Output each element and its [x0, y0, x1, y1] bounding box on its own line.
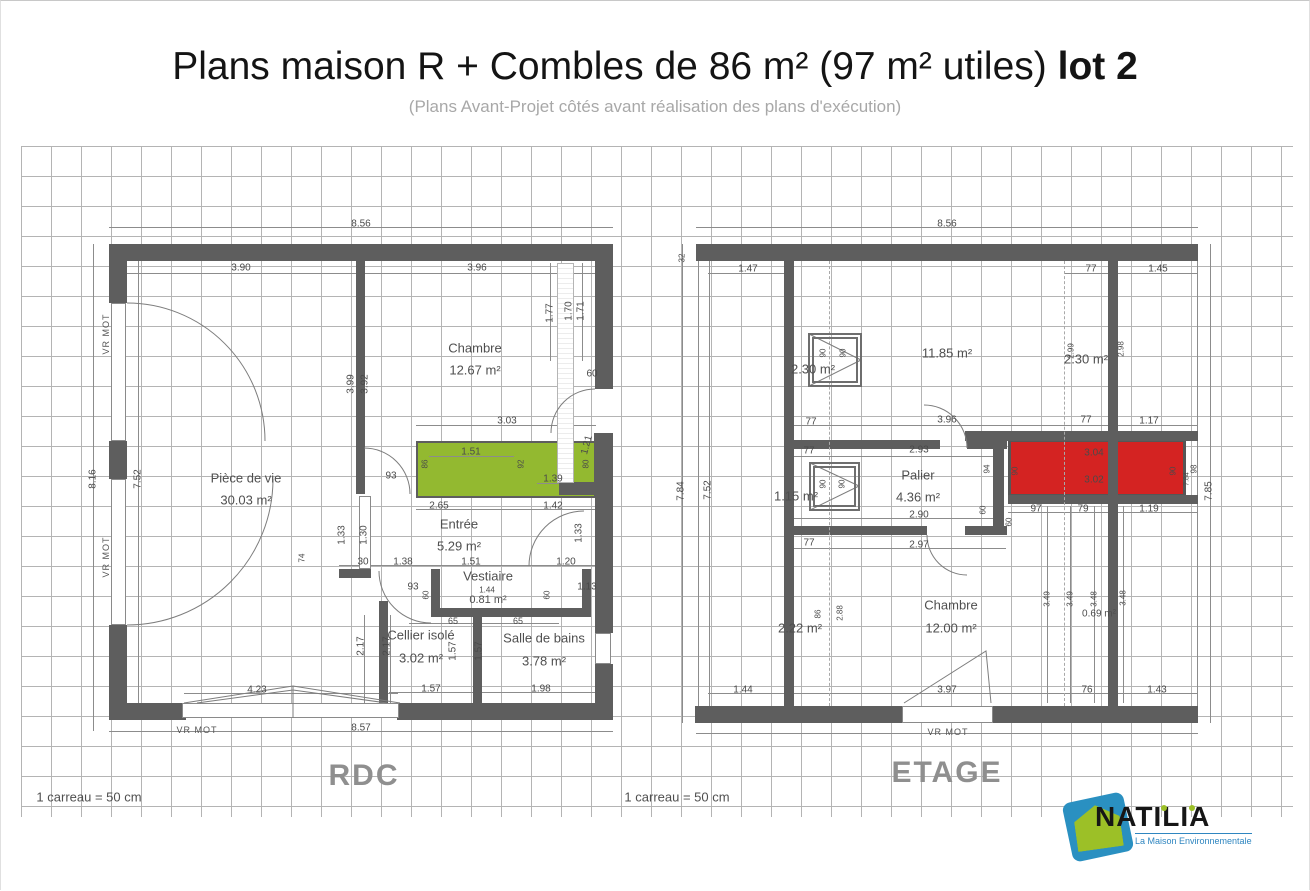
room-label: Chambre [924, 598, 977, 613]
dimension-label: 97 [1030, 504, 1041, 515]
dimension-label: 1.57 [421, 684, 440, 695]
door-swing-arc [809, 334, 861, 386]
room-label: 12.00 m² [925, 621, 976, 636]
room-label: 2.22 m² [778, 621, 822, 636]
dimension-label: 77 [803, 446, 814, 457]
dimension-label: 3.02 [1084, 475, 1103, 486]
dimension-label: 90 [819, 349, 828, 358]
dimension-label: 65 [448, 616, 458, 626]
room-label: Pièce de vie [211, 471, 282, 486]
dimension-label: 7.84 [676, 481, 687, 500]
room-label: 11.85 m² [922, 346, 972, 361]
dimension-label: 1.33 [337, 525, 348, 544]
dimension-label: 76 [1081, 685, 1092, 696]
dimension-label: 80 [582, 460, 591, 469]
door-swing-arc [127, 303, 265, 441]
dimension-label: 3.04 [1084, 448, 1103, 459]
dimension-label: 1.19 [1139, 504, 1158, 515]
dimension-label: 3.03 [497, 416, 516, 427]
floorplan-canvas: 8.563.903.961.771.701.713.993.923.03601.… [1, 1, 1310, 891]
dimension-label: 3.97 [937, 685, 956, 696]
dimension-label: 60 [543, 591, 552, 600]
dimension-label: 60 [422, 591, 431, 600]
dimension-label: 90 [819, 480, 828, 489]
room-label: 2.30 m² [791, 362, 835, 377]
dimension-label: 7.52 [133, 469, 144, 488]
shutter-label: VR MOT [101, 314, 111, 355]
dimension-label: 8.57 [351, 723, 370, 734]
dimension-label: 2.93 [909, 445, 928, 456]
dimension-label: 1.98 [531, 684, 550, 695]
dimension-label: 1.39 [543, 474, 562, 485]
dimension-label: 90 [1011, 467, 1020, 476]
dimension-label: 1.51 [461, 447, 480, 458]
room-label: 1.15 m² [774, 489, 818, 504]
dimension-label: 60 [586, 369, 597, 380]
dimension-label: 1.42 [543, 501, 562, 512]
dimension-label: 98 [1190, 465, 1199, 474]
dimension-label: 3.49 [1066, 591, 1075, 607]
dimension-label: 7.84 [1184, 472, 1191, 486]
dimension-label: 3.49 [1043, 591, 1052, 607]
dimension-label: 7.52 [703, 480, 714, 499]
dimension-label: 3.48 [1090, 591, 1099, 607]
logo-i-dot-icon [1189, 805, 1195, 811]
dimension-label: 3.90 [231, 263, 250, 274]
logo-tagline: La Maison Environnementale [1135, 833, 1252, 846]
dimension-label: 3.99 [346, 374, 357, 393]
dimension-label: 1.77 [545, 303, 556, 322]
dimension-label: 2.65 [429, 501, 448, 512]
natilia-logo: NATILIA La Maison Environnementale [1061, 785, 1271, 871]
room-label: 12.67 m² [449, 363, 500, 378]
dimension-label: 93 [385, 471, 396, 482]
dimension-label: 1.13 [577, 582, 596, 593]
room-label: Cellier isolé [387, 628, 454, 643]
scale-note: 1 carreau = 50 cm [624, 790, 729, 805]
shutter-label: VR MOT [101, 537, 111, 578]
dimension-label: 3.96 [467, 263, 486, 274]
dimension-label: 86 [421, 460, 430, 469]
dimension-label: 1.44 [733, 685, 752, 696]
room-label: 3.78 m² [522, 654, 566, 669]
dimension-label: 3.96 [937, 415, 956, 426]
dimension-label: 1.20 [556, 557, 575, 568]
room-label: Salle de bains [503, 631, 585, 646]
logo-i-dot-icon [1161, 805, 1167, 811]
dimension-label: 3.48 [1119, 590, 1128, 606]
dimension-label: 1.57 [474, 641, 485, 660]
dimension-label: 1.71 [576, 301, 587, 320]
dimension-label: 2.98 [1117, 341, 1126, 357]
dimension-label: 86 [814, 610, 823, 619]
room-label: Vestiaire [463, 569, 513, 584]
dimension-label: 8.16 [88, 469, 99, 488]
dimension-label: 3.92 [360, 374, 371, 393]
door-swing-arc [184, 686, 400, 718]
dimension-label: 1.33 [574, 523, 585, 542]
dimension-label: 2.90 [909, 510, 928, 521]
dimension-label: 1.17 [1139, 416, 1158, 427]
dimension-label: 1.70 [564, 301, 575, 320]
door-swing-arc [927, 535, 967, 575]
dimension-label: 90 [838, 480, 847, 489]
door-swing-and-symbol-layer [1, 1, 1310, 891]
dimension-label: 77 [803, 538, 814, 549]
room-label: Palier [901, 468, 934, 483]
dimension-label: 2.99 [1067, 343, 1076, 359]
dimension-label: 1.57 [448, 641, 459, 660]
room-label: 4.36 m² [896, 490, 940, 505]
floor-label: ETAGE [891, 756, 1002, 790]
dimension-label: 77 [1080, 415, 1091, 426]
dimension-label: 77 [1085, 264, 1096, 275]
dimension-label: 77 [805, 417, 816, 428]
room-label: 5.29 m² [437, 539, 481, 554]
room-label: Chambre [448, 341, 501, 356]
dimension-label: 1.47 [738, 264, 757, 275]
dimension-label: 1.51 [461, 557, 480, 568]
shutter-label: VR MOT [177, 725, 218, 735]
dimension-label: 2.97 [909, 540, 928, 551]
dimension-label: 32 [678, 254, 687, 263]
dimension-label: 1.45 [1148, 264, 1167, 275]
dimension-label: 1.43 [1147, 685, 1166, 696]
scale-note: 1 carreau = 50 cm [36, 790, 141, 805]
dimension-label: 74 [298, 554, 307, 563]
door-swing-arc [551, 389, 595, 433]
dimension-label: 90 [1169, 467, 1178, 476]
dimension-label: 90 [839, 349, 848, 358]
door-swing-arc [924, 405, 967, 448]
dimension-label: 1.30 [359, 525, 370, 544]
dimension-label: 8.56 [351, 219, 370, 230]
dimension-label: 65 [513, 616, 523, 626]
room-label: Entrée [440, 517, 478, 532]
room-label: 0.81 m² [469, 594, 506, 606]
dimension-label: 60 [1005, 518, 1014, 527]
floor-label: RDC [329, 759, 400, 793]
dimension-label: 4.23 [247, 685, 266, 696]
dimension-label: 8.56 [937, 219, 956, 230]
room-label: 3.02 m² [399, 651, 443, 666]
dimension-label: 60 [979, 506, 988, 515]
room-label: 0.69 m² [1082, 609, 1116, 620]
shutter-label: VR MOT [928, 727, 969, 737]
dimension-label: 30 [357, 557, 368, 568]
dimension-label: 2.88 [836, 605, 845, 621]
velux-window-icon [809, 334, 861, 386]
room-label: 30.03 m² [220, 493, 271, 508]
dimension-label: 94 [983, 465, 992, 474]
dimension-label: 1.38 [393, 557, 412, 568]
dimension-label: 79 [1077, 504, 1088, 515]
dimension-label: 2.17 [356, 636, 367, 655]
dimension-label: 92 [517, 460, 526, 469]
dimension-label: 7.85 [1204, 481, 1215, 500]
dimension-label: 93 [407, 582, 418, 593]
